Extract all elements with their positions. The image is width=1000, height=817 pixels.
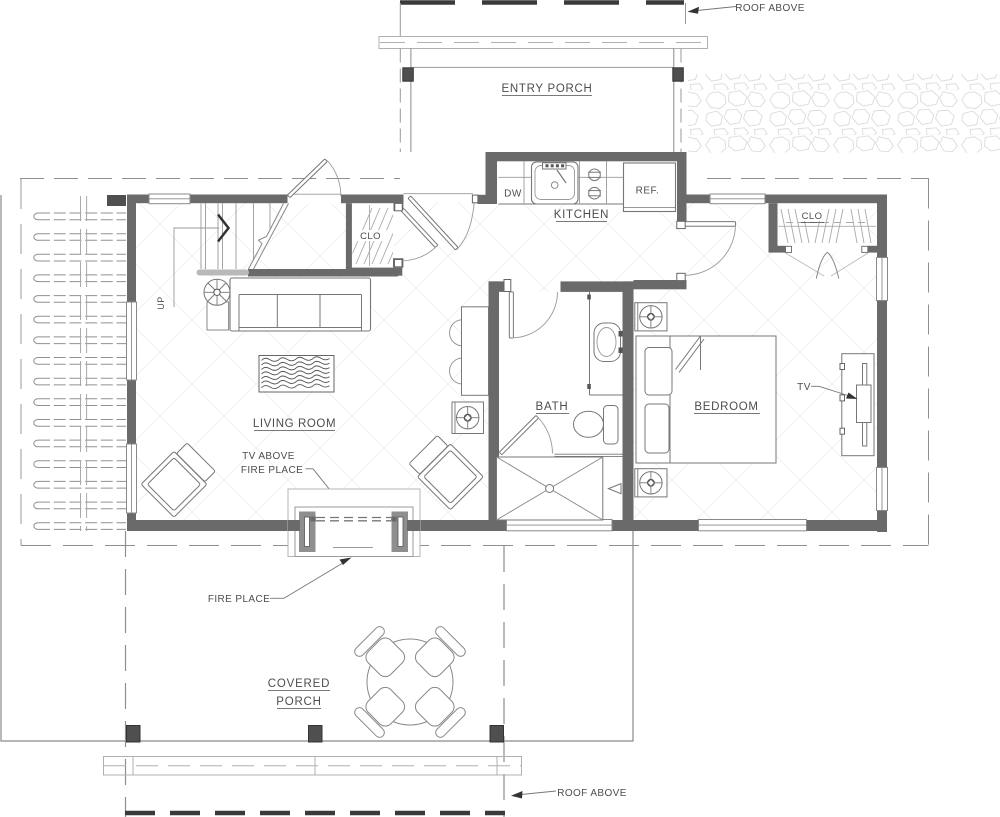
svg-text:CLO: CLO	[360, 231, 381, 242]
svg-text:ROOF ABOVE: ROOF ABOVE	[735, 3, 805, 14]
svg-text:TV ABOVE: TV ABOVE	[242, 451, 295, 462]
svg-text:FIRE PLACE: FIRE PLACE	[208, 594, 270, 605]
svg-text:DW: DW	[504, 189, 522, 200]
svg-text:ENTRY PORCH: ENTRY PORCH	[502, 83, 593, 95]
svg-text:KITCHEN: KITCHEN	[554, 209, 609, 221]
svg-text:BATH: BATH	[535, 401, 568, 413]
svg-text:BEDROOM: BEDROOM	[694, 401, 758, 413]
svg-text:LIVING ROOM: LIVING ROOM	[253, 418, 336, 430]
svg-text:UP: UP	[156, 296, 166, 310]
svg-text:ROOF ABOVE: ROOF ABOVE	[557, 788, 627, 799]
svg-text:CLO: CLO	[802, 211, 823, 222]
svg-text:PORCH: PORCH	[276, 696, 322, 708]
svg-text:FIRE PLACE: FIRE PLACE	[241, 465, 303, 476]
svg-text:REF.: REF.	[636, 186, 660, 197]
svg-text:COVERED: COVERED	[268, 678, 330, 690]
svg-text:TV: TV	[797, 382, 811, 393]
